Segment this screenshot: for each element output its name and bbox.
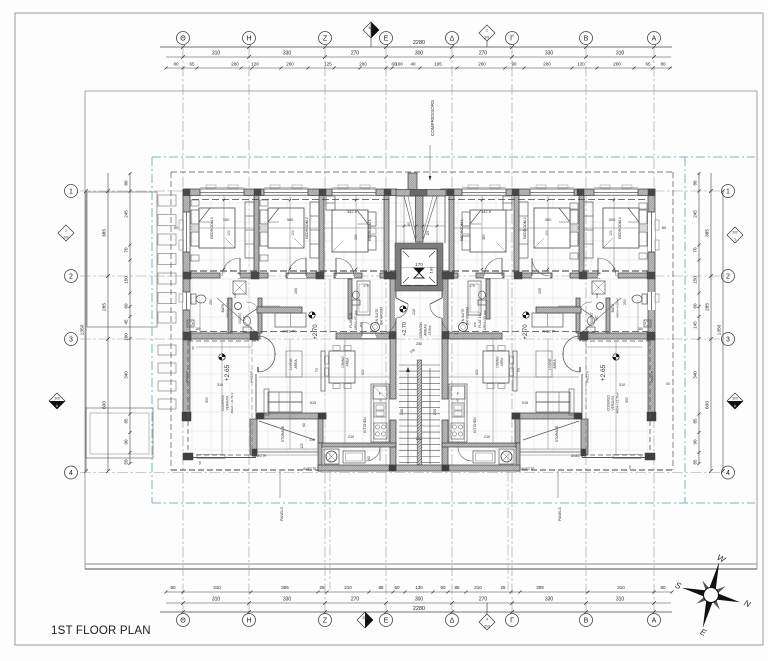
svg-text:2: 2 (69, 274, 73, 281)
svg-text:550: 550 (205, 397, 209, 403)
svg-text:250: 250 (400, 409, 404, 415)
svg-text:630: 630 (361, 369, 365, 375)
svg-text:80: 80 (660, 62, 666, 67)
svg-text:310: 310 (212, 51, 221, 57)
svg-text:50: 50 (628, 465, 632, 469)
svg-text:170: 170 (469, 284, 475, 288)
svg-text:415: 415 (309, 438, 315, 442)
svg-text:EN SUITE: EN SUITE (461, 309, 465, 324)
svg-text:270: 270 (479, 51, 488, 57)
svg-text:A: A (652, 36, 657, 43)
svg-text:25.6m²: 25.6m² (428, 325, 432, 335)
svg-text:340: 340 (124, 371, 129, 379)
svg-text:AREA=95.4m²: AREA=95.4m² (354, 310, 358, 330)
svg-text:85: 85 (693, 418, 698, 424)
svg-text:200: 200 (478, 62, 486, 67)
svg-text:2: 2 (486, 29, 488, 33)
svg-text:330: 330 (545, 51, 554, 57)
svg-text:60: 60 (440, 585, 446, 590)
svg-text:+2.65: +2.65 (600, 364, 607, 381)
svg-text:BATH: BATH (611, 303, 615, 312)
svg-text:100: 100 (609, 230, 613, 236)
svg-text:130: 130 (595, 293, 599, 298)
svg-text:80: 80 (662, 225, 667, 230)
svg-text:60: 60 (367, 456, 371, 460)
svg-text:270: 270 (479, 597, 488, 603)
svg-text:300: 300 (732, 397, 738, 401)
svg-text:300: 300 (415, 51, 424, 57)
svg-text:301: 301 (362, 616, 368, 620)
svg-text:200: 200 (543, 62, 551, 67)
svg-text:4: 4 (486, 618, 488, 622)
svg-text:KITCHEN: KITCHEN (363, 417, 367, 433)
svg-text:203: 203 (484, 625, 490, 629)
svg-text:210: 210 (344, 585, 352, 590)
svg-text:300: 300 (545, 217, 552, 222)
svg-text:ΑΝΕΣΤΡ.: ΑΝΕΣΤΡ. (650, 371, 654, 383)
svg-text:100: 100 (291, 230, 295, 236)
svg-text:310: 310 (616, 597, 625, 603)
svg-text:LIVING: LIVING (548, 358, 552, 369)
svg-text:630: 630 (475, 369, 479, 375)
svg-text:385: 385 (102, 229, 108, 237)
svg-text:AREA: AREA (500, 357, 504, 367)
svg-text:310: 310 (213, 585, 221, 590)
svg-text:200: 200 (231, 62, 239, 67)
svg-text:550: 550 (625, 397, 629, 403)
svg-text:AREA=4.58 m²: AREA=4.58 m² (226, 298, 230, 318)
svg-text:305: 305 (536, 585, 544, 590)
svg-text:Γ: Γ (510, 36, 514, 43)
svg-text:200: 200 (359, 62, 367, 67)
svg-text:Γ: Γ (510, 618, 514, 625)
svg-text:DINING: DINING (341, 356, 345, 368)
svg-text:50: 50 (191, 346, 195, 350)
svg-text:40: 40 (410, 62, 416, 67)
svg-text:COVERED: COVERED (607, 394, 611, 410)
svg-text:85: 85 (693, 459, 698, 465)
svg-text:S: S (379, 399, 381, 403)
svg-text:300: 300 (54, 397, 60, 401)
svg-text:100: 100 (538, 288, 542, 294)
svg-text:Θ: Θ (180, 618, 186, 625)
svg-text:1: 1 (726, 189, 730, 196)
svg-text:130: 130 (415, 585, 423, 590)
svg-text:80: 80 (693, 180, 698, 186)
svg-text:60: 60 (693, 303, 698, 309)
svg-text:50: 50 (198, 461, 202, 465)
svg-text:245: 245 (124, 210, 129, 218)
svg-text:210: 210 (348, 435, 354, 439)
svg-text:250: 250 (433, 409, 437, 415)
svg-text:EN SUITE: EN SUITE (375, 309, 379, 324)
svg-text:AREA = 22.79m²: AREA = 22.79m² (230, 392, 234, 413)
svg-text:VERANTA: VERANTA (611, 395, 615, 411)
svg-text:80: 80 (174, 225, 179, 230)
svg-text:250: 250 (623, 299, 627, 305)
svg-text:FLAT 101: FLAT 101 (349, 312, 353, 327)
svg-text:1: 1 (69, 189, 73, 196)
svg-text:330: 330 (283, 597, 292, 603)
svg-text:80: 80 (173, 62, 179, 67)
svg-text:340: 340 (693, 371, 698, 379)
svg-text:45: 45 (124, 319, 129, 325)
svg-text:80: 80 (660, 585, 666, 590)
svg-text:150: 150 (124, 276, 129, 284)
svg-text:B: B (584, 618, 589, 625)
svg-text:200: 200 (63, 236, 69, 240)
svg-text:80: 80 (170, 585, 176, 590)
svg-text:195: 195 (434, 62, 442, 67)
svg-text:285: 285 (705, 303, 711, 311)
svg-text:FLAT 102: FLAT 102 (478, 312, 482, 327)
svg-text:60: 60 (124, 303, 129, 309)
svg-text:AREAS: AREAS (424, 324, 428, 336)
svg-text:70: 70 (693, 247, 698, 253)
svg-text:AREA: AREA (346, 357, 350, 367)
svg-text:200: 200 (613, 62, 621, 67)
svg-text:360: 360 (482, 234, 486, 240)
svg-text:90: 90 (511, 62, 517, 67)
svg-text:80: 80 (124, 180, 129, 186)
svg-text:210: 210 (412, 309, 416, 315)
svg-text:600: 600 (102, 401, 108, 409)
svg-text:COMMON: COMMON (419, 322, 423, 338)
svg-text:DINING: DINING (496, 356, 500, 368)
svg-text:ΑΝΕΣΤΡ.: ΑΝΕΣΤΡ. (571, 454, 585, 458)
svg-text:Δ: Δ (450, 36, 455, 43)
svg-text:85: 85 (378, 585, 384, 590)
svg-text:2280: 2280 (413, 606, 425, 612)
svg-text:PANELS: PANELS (558, 506, 562, 521)
svg-text:BEDROOM 1: BEDROOM 1 (460, 219, 464, 241)
svg-text:ΑΝΕΣΤΡ.: ΑΝΕΣΤΡ. (253, 454, 267, 458)
svg-text:600: 600 (705, 401, 711, 409)
svg-text:150: 150 (359, 322, 363, 327)
svg-text:300: 300 (609, 217, 616, 222)
svg-text:100: 100 (294, 288, 298, 294)
svg-text:3: 3 (734, 238, 736, 242)
svg-text:130: 130 (233, 293, 237, 298)
svg-text:COVERED: COVERED (221, 394, 225, 410)
svg-text:60: 60 (302, 423, 306, 427)
svg-text:201: 201 (484, 36, 490, 40)
svg-text:1ST FLOOR PLAN: 1ST FLOOR PLAN (51, 625, 151, 637)
svg-text:330: 330 (283, 51, 292, 57)
svg-text:90: 90 (693, 439, 698, 445)
svg-text:125: 125 (300, 443, 304, 449)
svg-text:4: 4 (69, 470, 73, 477)
svg-text:Z: Z (323, 618, 328, 625)
svg-text:VERANTA: VERANTA (226, 395, 230, 411)
svg-text:BATHROOM: BATHROOM (466, 307, 470, 326)
svg-text:AREA: AREA (553, 359, 557, 369)
svg-text:2280: 2280 (413, 40, 425, 46)
svg-text:4: 4 (726, 470, 730, 477)
svg-text:ΑΝΕΣΤΡ.: ΑΝΕΣΤΡ. (185, 371, 189, 383)
svg-text:B: B (584, 36, 589, 43)
svg-text:Δ: Δ (450, 618, 455, 625)
svg-text:250: 250 (209, 299, 213, 305)
svg-text:E: E (384, 618, 389, 625)
svg-text:1350: 1350 (717, 324, 723, 335)
svg-text:D9: D9 (426, 231, 430, 235)
svg-text:270: 270 (351, 51, 360, 57)
svg-text:Θ: Θ (180, 36, 186, 43)
svg-text:210: 210 (474, 585, 482, 590)
svg-text:342.5: 342.5 (481, 209, 492, 214)
svg-text:70: 70 (124, 247, 129, 253)
svg-text:25: 25 (500, 585, 506, 590)
svg-text:65: 65 (645, 62, 651, 67)
svg-text:H: H (246, 36, 251, 43)
svg-text:50: 50 (124, 459, 129, 465)
svg-text:WC: WC (243, 315, 247, 321)
svg-text:210: 210 (484, 435, 490, 439)
svg-text:+2.65: +2.65 (224, 364, 231, 381)
svg-text:120: 120 (577, 62, 585, 67)
svg-text:270: 270 (351, 597, 360, 603)
svg-text:ΑΝΕΣΤΡ.: ΑΝΕΣΤΡ. (586, 371, 590, 383)
svg-text:H: H (246, 618, 251, 625)
svg-text:+2.70: +2.70 (402, 322, 408, 336)
svg-text:85: 85 (124, 418, 129, 424)
svg-text:1350: 1350 (80, 324, 86, 335)
svg-text:1: 1 (65, 229, 67, 233)
svg-text:120: 120 (251, 62, 259, 67)
svg-text:150: 150 (473, 322, 477, 327)
svg-text:300: 300 (287, 217, 294, 222)
svg-text:TV: TV (315, 367, 319, 372)
svg-text:60: 60 (394, 585, 400, 590)
svg-text:S: S (456, 399, 458, 403)
svg-text:100: 100 (124, 333, 129, 341)
svg-text:KITCHEN: KITCHEN (473, 417, 477, 433)
svg-text:300: 300 (415, 597, 424, 603)
svg-text:170: 170 (363, 284, 369, 288)
svg-text:65: 65 (189, 62, 195, 67)
svg-text:ΑΝΕΣΤΡ.: ΑΝΕΣΤΡ. (521, 467, 535, 471)
svg-text:LIVING: LIVING (289, 358, 293, 369)
svg-text:TV: TV (517, 367, 521, 372)
svg-text:125: 125 (324, 62, 332, 67)
svg-text:AREA: AREA (294, 359, 298, 369)
svg-text:BATHROOM: BATHROOM (380, 307, 384, 326)
svg-text:305: 305 (281, 585, 289, 590)
svg-text:COMPRESSORS: COMPRESSORS (430, 100, 435, 136)
svg-text:250: 250 (416, 437, 422, 441)
svg-text:515: 515 (522, 401, 528, 405)
svg-text:2: 2 (726, 274, 730, 281)
svg-text:100: 100 (227, 230, 231, 236)
svg-text:90: 90 (124, 439, 129, 445)
svg-text:E: E (384, 36, 389, 43)
svg-text:310: 310 (212, 597, 221, 603)
svg-text:245: 245 (693, 210, 698, 218)
svg-text:PANELS: PANELS (280, 506, 284, 521)
svg-text:BEDROOM 1: BEDROOM 1 (368, 219, 372, 241)
svg-text:100: 100 (545, 230, 549, 236)
svg-text:85: 85 (454, 585, 460, 590)
svg-text:180: 180 (429, 266, 434, 273)
svg-text:310: 310 (617, 585, 625, 590)
svg-text:STORAGE: STORAGE (555, 425, 559, 442)
svg-text:3: 3 (69, 337, 73, 344)
svg-text:50: 50 (666, 382, 670, 386)
svg-text:Z: Z (323, 36, 328, 43)
svg-text:ΑΝΕΣΤΡ.: ΑΝΕΣΤΡ. (250, 371, 254, 383)
svg-text:60: 60 (407, 222, 411, 226)
svg-text:330: 330 (545, 597, 554, 603)
svg-text:202: 202 (732, 231, 738, 235)
svg-text:A: A (652, 618, 657, 625)
svg-text:STORAGE: STORAGE (281, 425, 285, 442)
svg-text:515: 515 (310, 401, 316, 405)
svg-text:25: 25 (319, 585, 325, 590)
svg-text:385: 385 (705, 229, 711, 237)
svg-text:ΑΝΕΣΤΡ.: ΑΝΕΣΤΡ. (303, 467, 317, 471)
svg-text:285: 285 (102, 303, 108, 311)
svg-text:170: 170 (415, 262, 423, 267)
svg-text:310: 310 (616, 51, 625, 57)
svg-text:100: 100 (395, 62, 403, 67)
svg-text:150: 150 (693, 276, 698, 284)
svg-text:200: 200 (286, 62, 294, 67)
svg-text:310: 310 (619, 383, 625, 387)
svg-text:3: 3 (726, 337, 730, 344)
svg-text:AREA=95.4m²: AREA=95.4m² (483, 310, 487, 330)
svg-text:145: 145 (693, 321, 698, 329)
svg-text:250: 250 (416, 342, 422, 346)
